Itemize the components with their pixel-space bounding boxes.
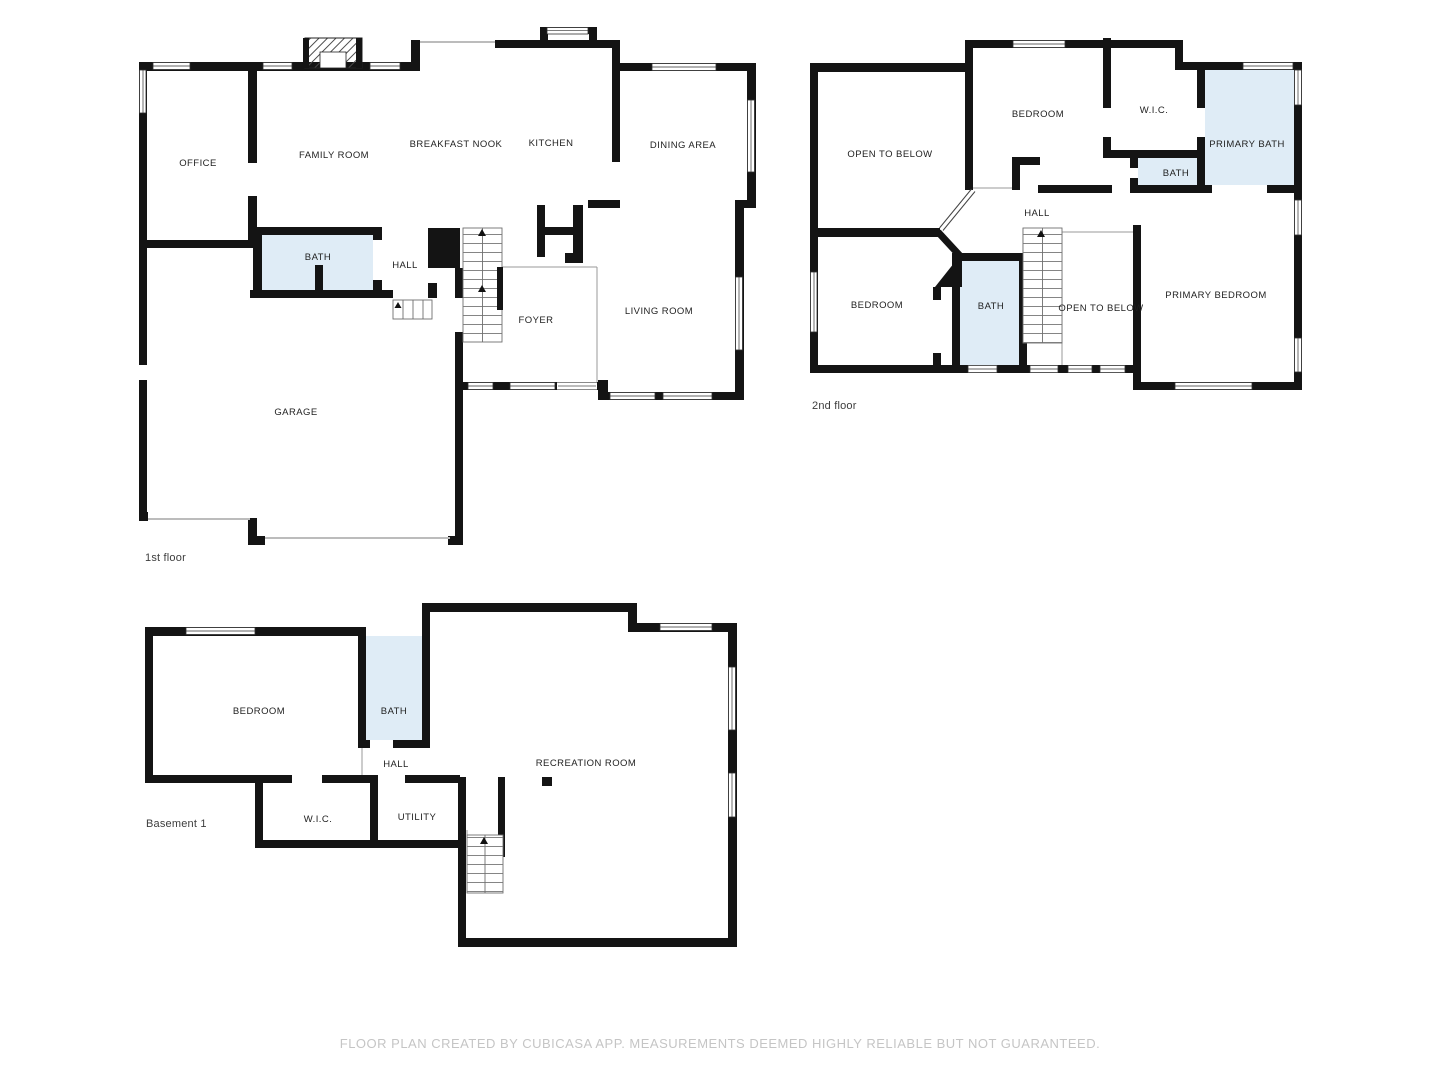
room-label-hall-1f: HALL — [392, 260, 418, 271]
room-label-bedroom-top: BEDROOM — [1012, 109, 1064, 120]
floor-plan-canvas: OFFICE FAMILY ROOM BREAKFAST NOOK KITCHE… — [0, 0, 1440, 1080]
room-label-bedroom-bsmt: BEDROOM — [233, 706, 285, 717]
room-label-primary-bath: PRIMARY BATH — [1209, 139, 1285, 150]
primary-bath-fill — [1205, 70, 1294, 185]
fireplace — [303, 38, 362, 68]
room-label-bath-bsmt: BATH — [381, 706, 407, 717]
room-label-recreation-room: RECREATION ROOM — [536, 758, 637, 769]
walls-1st-floor — [139, 27, 756, 545]
room-label-garage: GARAGE — [274, 407, 317, 418]
floor-label-basement: Basement 1 — [146, 818, 207, 830]
floorplan-2nd-floor: OPEN TO BELOW BEDROOM W.I.C. PRIMARY BAT… — [810, 38, 1302, 412]
room-label-bedroom-left: BEDROOM — [851, 300, 903, 311]
floorplan-1st-floor: OFFICE FAMILY ROOM BREAKFAST NOOK KITCHE… — [139, 27, 756, 564]
room-label-hall-2f: HALL — [1024, 208, 1050, 219]
staircase-basement — [467, 835, 503, 893]
floor-label-2nd: 2nd floor — [812, 400, 857, 412]
room-label-bath-1f: BATH — [305, 252, 331, 263]
bath2-fill — [960, 261, 1019, 365]
room-label-open-below-center: OPEN TO BELOW — [1058, 303, 1143, 314]
room-label-bath-small: BATH — [1163, 168, 1189, 179]
floorplan-basement: BEDROOM BATH HALL RECREATION ROOM W.I.C.… — [145, 603, 737, 947]
walls-basement — [145, 603, 737, 947]
staircase-1st-floor — [463, 228, 503, 342]
room-label-foyer: FOYER — [519, 315, 554, 326]
floor-label-1st: 1st floor — [145, 552, 186, 564]
room-label-primary-bedroom: PRIMARY BEDROOM — [1165, 290, 1266, 301]
staircase-2nd-floor — [1023, 228, 1062, 343]
room-label-utility: UTILITY — [398, 812, 437, 823]
room-label-wic-bsmt: W.I.C. — [304, 814, 333, 825]
support-post — [542, 777, 552, 786]
footer-disclaimer: FLOOR PLAN CREATED BY CUBICASA APP. MEAS… — [340, 1036, 1100, 1051]
room-label-living-room: LIVING ROOM — [625, 306, 693, 317]
basement-bath-fill — [366, 636, 422, 740]
floor-plan-page: OFFICE FAMILY ROOM BREAKFAST NOOK KITCHE… — [0, 0, 1440, 1080]
room-label-kitchen: KITCHEN — [529, 138, 574, 149]
basement-stair-head — [393, 300, 432, 319]
room-label-open-below-left: OPEN TO BELOW — [847, 149, 932, 160]
room-label-office: OFFICE — [179, 158, 217, 169]
room-label-bath-2f: BATH — [978, 301, 1004, 312]
windows-1st-floor — [140, 28, 755, 400]
room-label-wic-2f: W.I.C. — [1140, 105, 1169, 116]
room-label-family-room: FAMILY ROOM — [299, 150, 369, 161]
room-label-hall-bsmt: HALL — [383, 759, 409, 770]
room-label-breakfast-nook: BREAKFAST NOOK — [410, 139, 503, 150]
room-label-dining-area: DINING AREA — [650, 140, 716, 151]
